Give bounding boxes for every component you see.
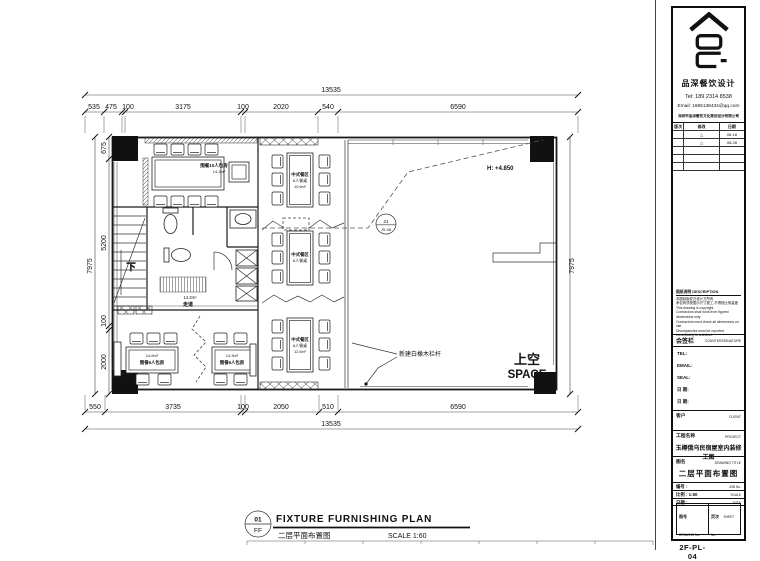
drawing-no-cell: 图号 DRAWING No. 2F-PL-04 (677, 504, 709, 534)
column (112, 136, 138, 161)
drawing-no-label-en: DRAWING No. (679, 533, 700, 537)
room-a-name: 围餐6人包房 (140, 359, 165, 366)
dim-left-4: 2000 (101, 354, 108, 370)
revision-row: △ 08.18 (673, 131, 744, 139)
dimensions-top: 13535 535 475 100 3175 100 2020 540 6590 (82, 87, 581, 133)
staircase: 下 (113, 216, 146, 306)
railing-note-text: 新建白橡木栏杆 (399, 350, 441, 358)
corridor-label: 走道 (182, 301, 193, 308)
client-row: 客户 CLIENT (673, 410, 744, 419)
drawing-no-label-cn: 图号 (679, 514, 687, 519)
meta-job-en: JOB No. (729, 483, 741, 490)
dim-top-2: 475 (105, 104, 117, 111)
logo-glyph-icon (687, 12, 731, 74)
caption-floor: FF (254, 528, 262, 535)
sign-row: TEL: (673, 348, 744, 359)
sign-row: SEAL: (673, 372, 744, 383)
dining1-area: 10.6m² (294, 185, 307, 189)
dim-left-1: 675 (101, 142, 108, 154)
rev-mark: △ (684, 139, 720, 146)
bathroom: 14.3m² 走道 (160, 208, 257, 308)
caption-scale: SCALE 1:60 (388, 533, 427, 540)
dim-top-total: 13535 (321, 87, 341, 94)
room-a-area: 14.6m² (146, 353, 159, 358)
client-label-cn: 客户 (676, 412, 686, 419)
sign-row: EMAIL: (673, 360, 744, 371)
dining2-seats: 6人餐桌 (293, 257, 307, 263)
dim-bot-2: 3735 (165, 404, 181, 411)
notes-line: Contractors must check all dimensions on… (676, 320, 741, 329)
private-room-name: 围餐10人包房 (200, 162, 228, 169)
countersign-cn: 会签栏 (676, 336, 694, 345)
dining-set-1: 中式餐区 6人餐桌 10.6m² (272, 153, 330, 207)
rev-date: 08.18 (720, 131, 744, 138)
dining-set-3: 中式餐区 6人餐桌 12.5m² (272, 318, 330, 372)
rev-col-date: 日期 (720, 123, 744, 130)
countersign-header: 会签栏 COUNTERSIGNATURE (673, 334, 744, 347)
railing-note: 新建白橡木栏杆 (352, 343, 441, 386)
dining3-name: 中式餐区 (291, 336, 309, 343)
drawing-title-label-en: DRAWING TITLE (715, 461, 741, 465)
dining-set-2: 中式餐区 6人餐桌 (272, 231, 330, 285)
private-room-area: 14.3m² (213, 169, 226, 174)
notes-title: 图纸说明 DESCRIPTION (676, 290, 741, 296)
firm-name: 品深餐饮设计 (673, 78, 744, 89)
void-label-en: SPACE (508, 369, 547, 381)
dim-bot-4: 2050 (273, 404, 289, 411)
dim-top-1: 535 (88, 104, 100, 111)
drawing-number-box: 图号 DRAWING No. 2F-PL-04 页次 SHEET No. (676, 503, 741, 535)
sheet-no-label-cn: 页次 (711, 514, 719, 519)
rev-mark: △ (684, 131, 720, 138)
title-block: 品深餐饮设计 Tel: 189 2314 8538 Email: 1665138… (655, 0, 760, 550)
room-b-name: 围餐6人包房 (220, 359, 245, 366)
dim-bot-1: 550 (89, 404, 101, 411)
dim-bot-5: 510 (322, 404, 334, 411)
stair-down-label: 下 (126, 262, 135, 272)
height-note: H: +4.850 (487, 166, 514, 172)
meta-scale-label: 比例 : 1:60 (676, 491, 697, 498)
meta-row-scale: 比例 : 1:60 SCALE (673, 490, 744, 498)
wc-area-label: 14.3m² (183, 295, 197, 300)
dim-bot-6: 6590 (450, 404, 466, 411)
sheet-caption: 01 FF FIXTURE FURNISHING PLAN 二层平面布置图 SC… (245, 511, 653, 545)
dim-top-7: 540 (322, 104, 334, 111)
firm-logo (673, 12, 744, 79)
room-b-area: 14.3m² (226, 353, 239, 358)
revision-table: 版次 修改 日期 △ 08.18 △ 08.28 (673, 122, 744, 171)
caption-title-cn: 二层平面布置图 (278, 530, 331, 540)
dim-top-6: 2020 (273, 104, 289, 111)
dining2-name: 中式餐区 (291, 251, 309, 258)
screen-divider-2 (262, 295, 344, 303)
sheet-no-cell: 页次 SHEET No. (709, 504, 740, 534)
rev-date: 08.28 (720, 139, 744, 146)
dimensions-left: 7975 675 5200 100 2000 (87, 134, 112, 397)
dim-top-8: 6590 (450, 104, 466, 111)
drawing-title-row: 图名 DRAWING TITLE (673, 456, 744, 465)
meta-job-label: 编号 : (676, 483, 687, 490)
notes-line: Contractors shall work from figured dime… (676, 310, 741, 319)
dim-top-5: 100 (237, 104, 249, 111)
void-label-cn: 上空 (514, 352, 540, 367)
dining1-name: 中式餐区 (291, 171, 309, 178)
section-marker: 21 JS-08 (376, 214, 396, 234)
client-label-en: CLIENT (729, 415, 741, 419)
sign-row: 日 期: (673, 384, 744, 395)
drawing-no-value: 2F-PL-04 (679, 543, 706, 561)
firm-email: Email: 1665138434@qq.com (673, 104, 744, 109)
dining3-area: 12.5m² (294, 350, 307, 354)
drawing-title-label-cn: 图名 (676, 458, 686, 465)
dim-left-total: 7975 (87, 258, 94, 274)
project-label-cn: 工程名称 (676, 432, 695, 439)
floor-plan-sheet: 13535 535 475 100 3175 100 2020 540 6590 (0, 0, 655, 550)
dim-bottom-total: 13535 (321, 421, 341, 428)
dim-bot-3: 100 (237, 404, 249, 411)
caption-number: 01 (254, 517, 262, 524)
title-block-frame: 品深餐饮设计 Tel: 189 2314 8538 Email: 1665138… (671, 6, 746, 541)
firm-tel: Tel: 189 2314 8538 (673, 94, 744, 100)
sign-row: 日 期: (673, 396, 744, 407)
dim-top-3: 100 (122, 104, 134, 111)
revision-row: △ 08.28 (673, 139, 744, 147)
dim-right-total: 7975 (569, 258, 576, 274)
firm-company: 深圳市品深餐饮文化策划设计有限公司 (673, 114, 744, 119)
meta-row-job: 编号 : JOB No. (673, 482, 744, 490)
countersign-en: COUNTERSIGNATURE (705, 339, 741, 343)
dim-top-4: 3175 (175, 104, 191, 111)
dim-left-3: 100 (101, 315, 108, 327)
project-label-en: PROJECT (725, 435, 741, 439)
meta-scale-en: SCALE (731, 491, 741, 498)
drawing-title-value: 二层平面布置图 (673, 468, 744, 479)
private-dining-room: 围餐10人包房 14.3m² (152, 144, 249, 207)
folding-screen (192, 316, 206, 382)
rev-col-mark: 版次 (673, 123, 684, 130)
banquet-room-b: 14.3m² 围餐6人包房 (212, 333, 256, 385)
marker-number: 21 (383, 219, 389, 225)
dining3-seats: 6人餐桌 (293, 342, 307, 348)
project-row: 工程名称 PROJECT (673, 430, 744, 439)
marker-sheet: JS-08 (381, 228, 391, 232)
rev-col-note: 修改 (684, 123, 720, 130)
dimensions-bottom: 550 3735 100 2050 510 6590 13535 (82, 395, 581, 432)
dim-left-2: 5200 (101, 235, 108, 251)
dimensions-right: 7975 (567, 134, 576, 397)
notes-block: 图纸说明 DESCRIPTION 本图纸版权归设计方所有 承包商须按图示尺寸施工… (673, 290, 744, 338)
caption-title-en: FIXTURE FURNISHING PLAN (276, 514, 432, 525)
dining1-seats: 6人餐桌 (293, 177, 307, 183)
